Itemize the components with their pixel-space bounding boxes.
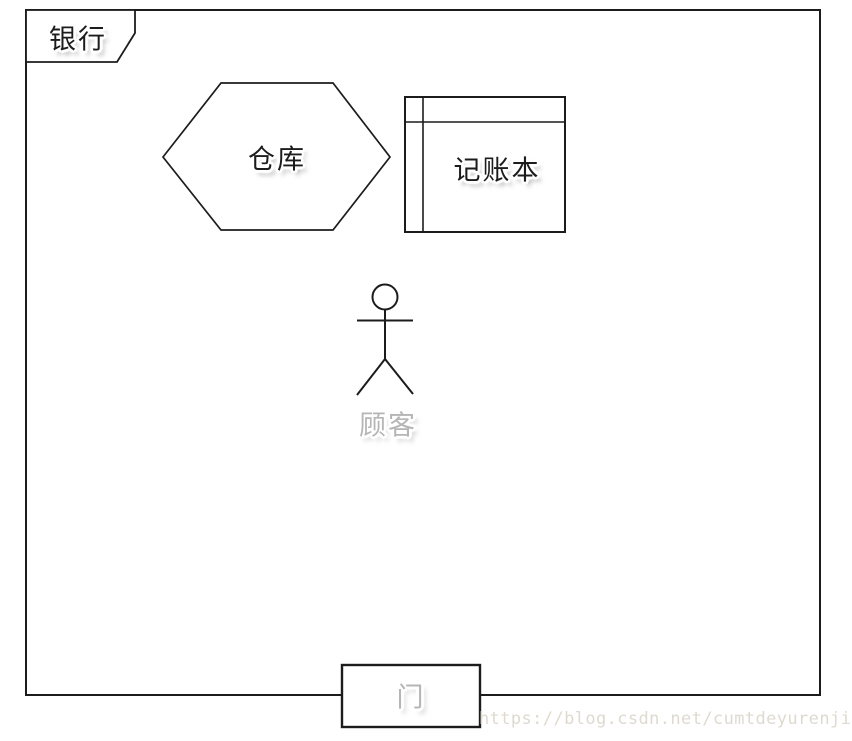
- door-label: 门: [397, 676, 426, 715]
- customer-stick-figure: [357, 285, 413, 396]
- csdn-watermark: https://blog.csdn.net/cumtdeyurenjie: [479, 709, 852, 729]
- warehouse-label: 仓库: [248, 138, 306, 177]
- diagram-canvas: [0, 0, 852, 741]
- customer-left-leg: [357, 359, 385, 395]
- ledger-label: 记账本: [454, 149, 541, 188]
- customer-head: [373, 285, 398, 310]
- customer-label: 顾客: [359, 404, 417, 443]
- bank-title-label: 银行: [49, 18, 107, 57]
- diagram-stage: 银行 仓库 记账本 顾客 门 https://blog.csdn.net/cum…: [0, 0, 852, 741]
- customer-right-leg: [385, 359, 413, 394]
